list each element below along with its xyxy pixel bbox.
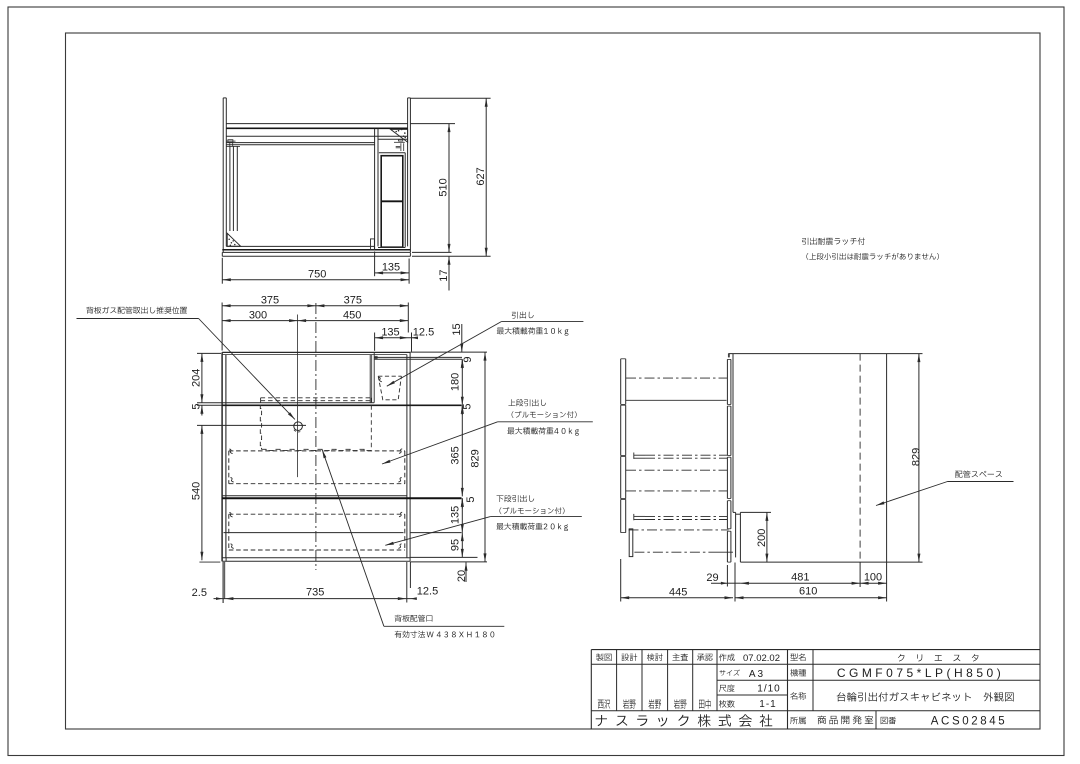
svg-text:450: 450 [343,309,361,321]
svg-text:180: 180 [449,373,461,391]
svg-text:5: 5 [462,403,474,409]
svg-text:100: 100 [864,571,882,583]
svg-text:07.02.02: 07.02.02 [743,653,780,664]
svg-text:540: 540 [191,482,203,500]
svg-text:135: 135 [382,262,400,274]
svg-text:A3: A3 [749,669,765,680]
svg-text:445: 445 [669,586,687,598]
svg-text:829: 829 [911,448,923,466]
svg-text:12.5: 12.5 [413,326,434,338]
svg-text:375: 375 [261,295,279,307]
svg-text:481: 481 [791,571,809,583]
svg-text:135: 135 [381,326,399,338]
svg-text:CGMF075*LP(H850): CGMF075*LP(H850) [837,666,1004,680]
svg-text:200: 200 [756,529,768,547]
svg-text:5: 5 [191,403,203,409]
svg-text:1-1: 1-1 [759,699,776,710]
svg-text:17: 17 [438,269,450,281]
svg-text:750: 750 [308,268,326,280]
svg-text:735: 735 [306,587,324,599]
svg-text:375: 375 [344,295,362,307]
svg-text:2.5: 2.5 [192,587,207,599]
svg-text:95: 95 [449,539,461,551]
svg-text:9: 9 [462,356,474,362]
svg-text:627: 627 [475,167,487,185]
svg-text:510: 510 [437,178,449,196]
svg-text:365: 365 [449,446,461,464]
svg-text:12.5: 12.5 [417,586,438,598]
svg-text:300: 300 [249,309,267,321]
svg-text:5: 5 [465,496,477,502]
svg-text:204: 204 [191,369,203,387]
svg-text:20: 20 [456,570,468,582]
svg-text:29: 29 [706,572,718,584]
svg-text:610: 610 [799,586,817,598]
svg-text:135: 135 [449,506,461,524]
svg-text:15: 15 [451,323,463,335]
svg-text:ACS02845: ACS02845 [931,715,1007,727]
svg-text:829: 829 [470,449,482,467]
svg-text:1/10: 1/10 [757,684,780,695]
